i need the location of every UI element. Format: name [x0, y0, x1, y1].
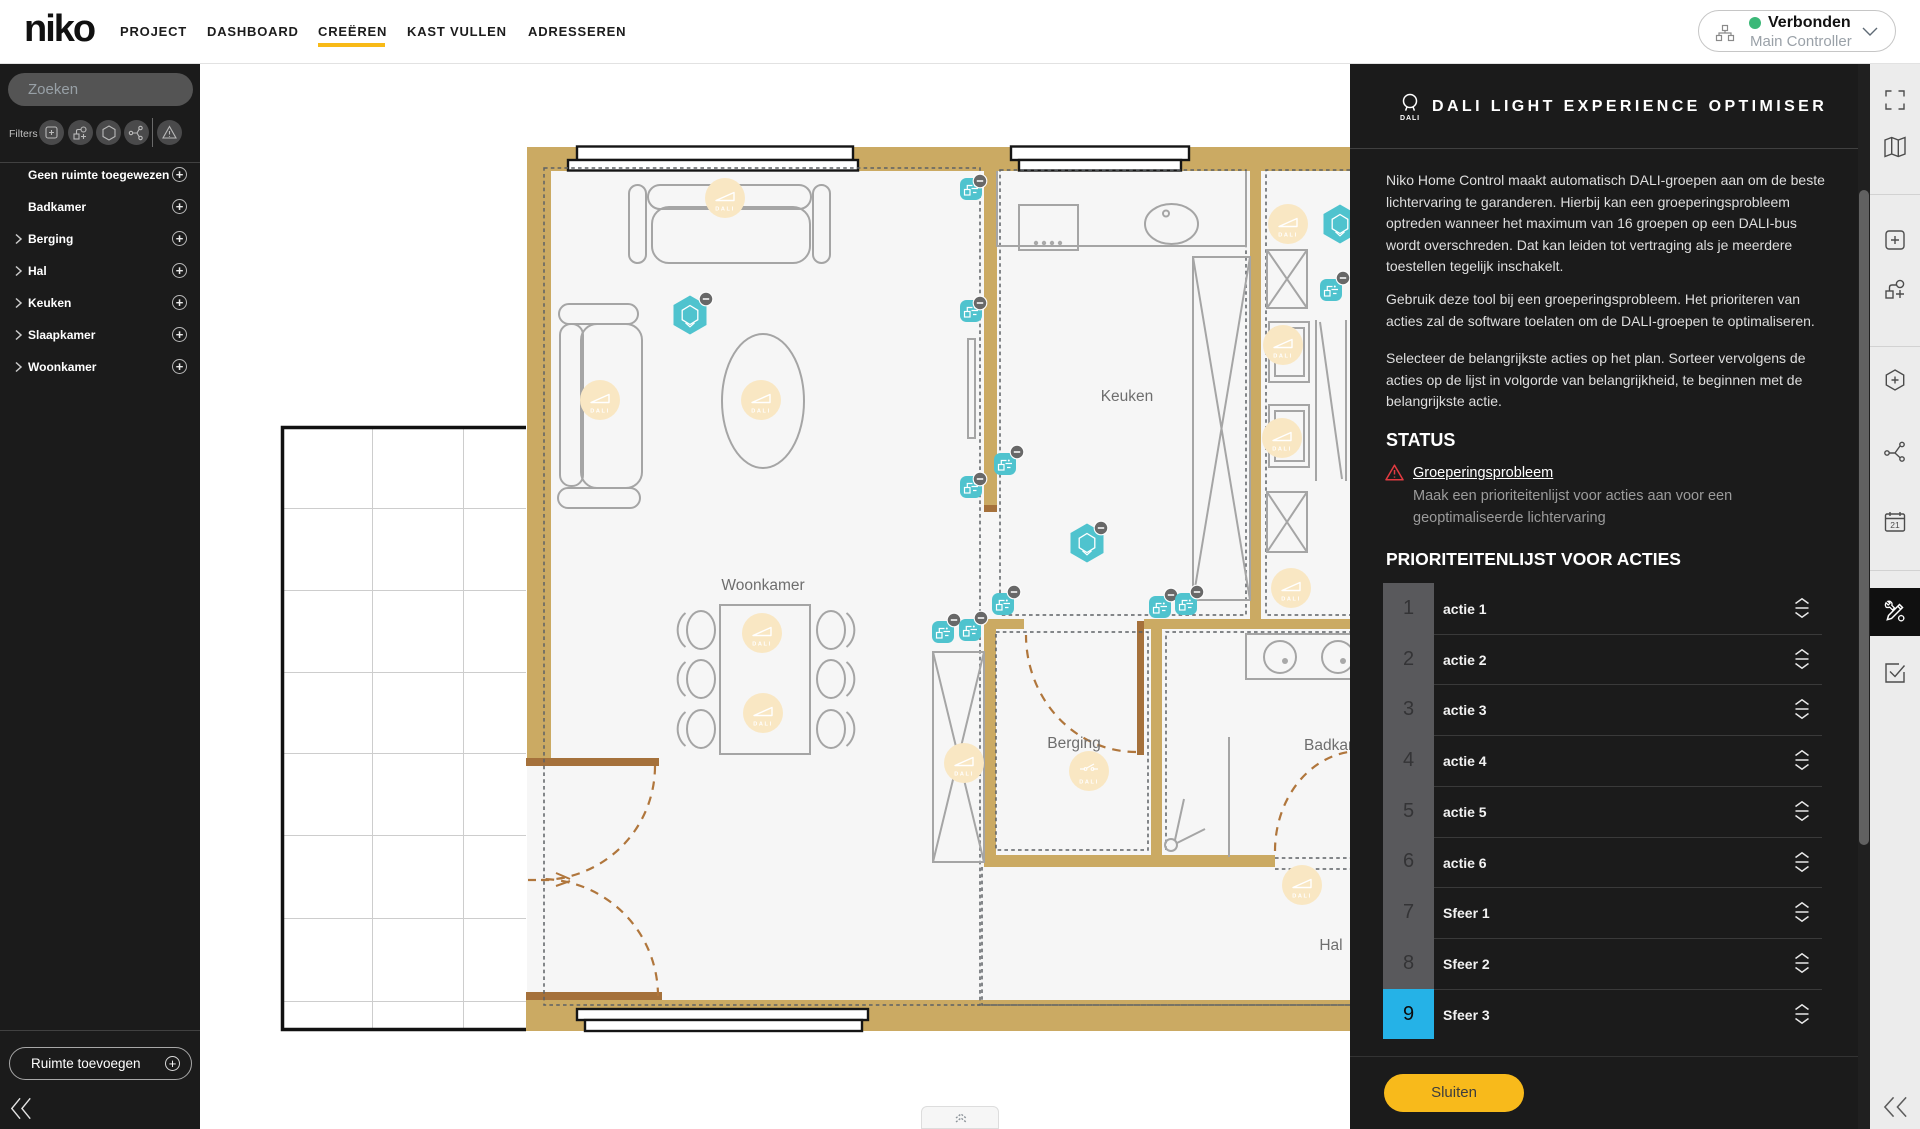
svg-text:Keuken: Keuken — [1101, 388, 1154, 405]
svg-text:21: 21 — [1890, 520, 1900, 530]
svg-text:Badkamer: Badkamer — [1304, 737, 1350, 754]
svg-text:DALI: DALI — [1400, 115, 1420, 122]
svg-text:Woonkamer: Woonkamer — [721, 577, 804, 594]
svg-text:Berging: Berging — [1047, 735, 1100, 752]
svg-text:Hal: Hal — [1319, 937, 1342, 954]
